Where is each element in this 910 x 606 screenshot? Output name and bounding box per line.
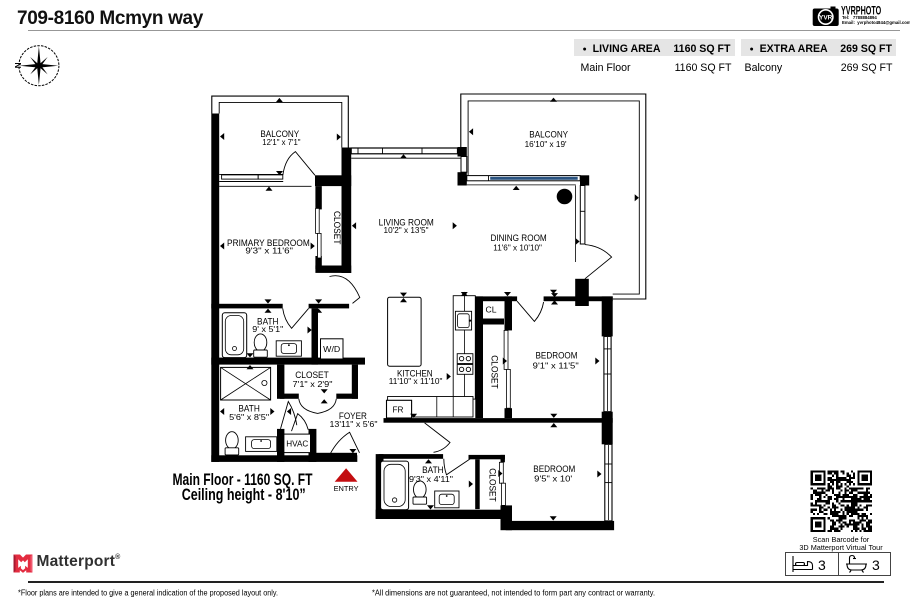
svg-text:*All dimensions are not guaran: *All dimensions are not guaranteed, not … (372, 589, 655, 598)
svg-text:*Floor plans are intended to g: *Floor plans are intended to give a gene… (18, 589, 278, 598)
